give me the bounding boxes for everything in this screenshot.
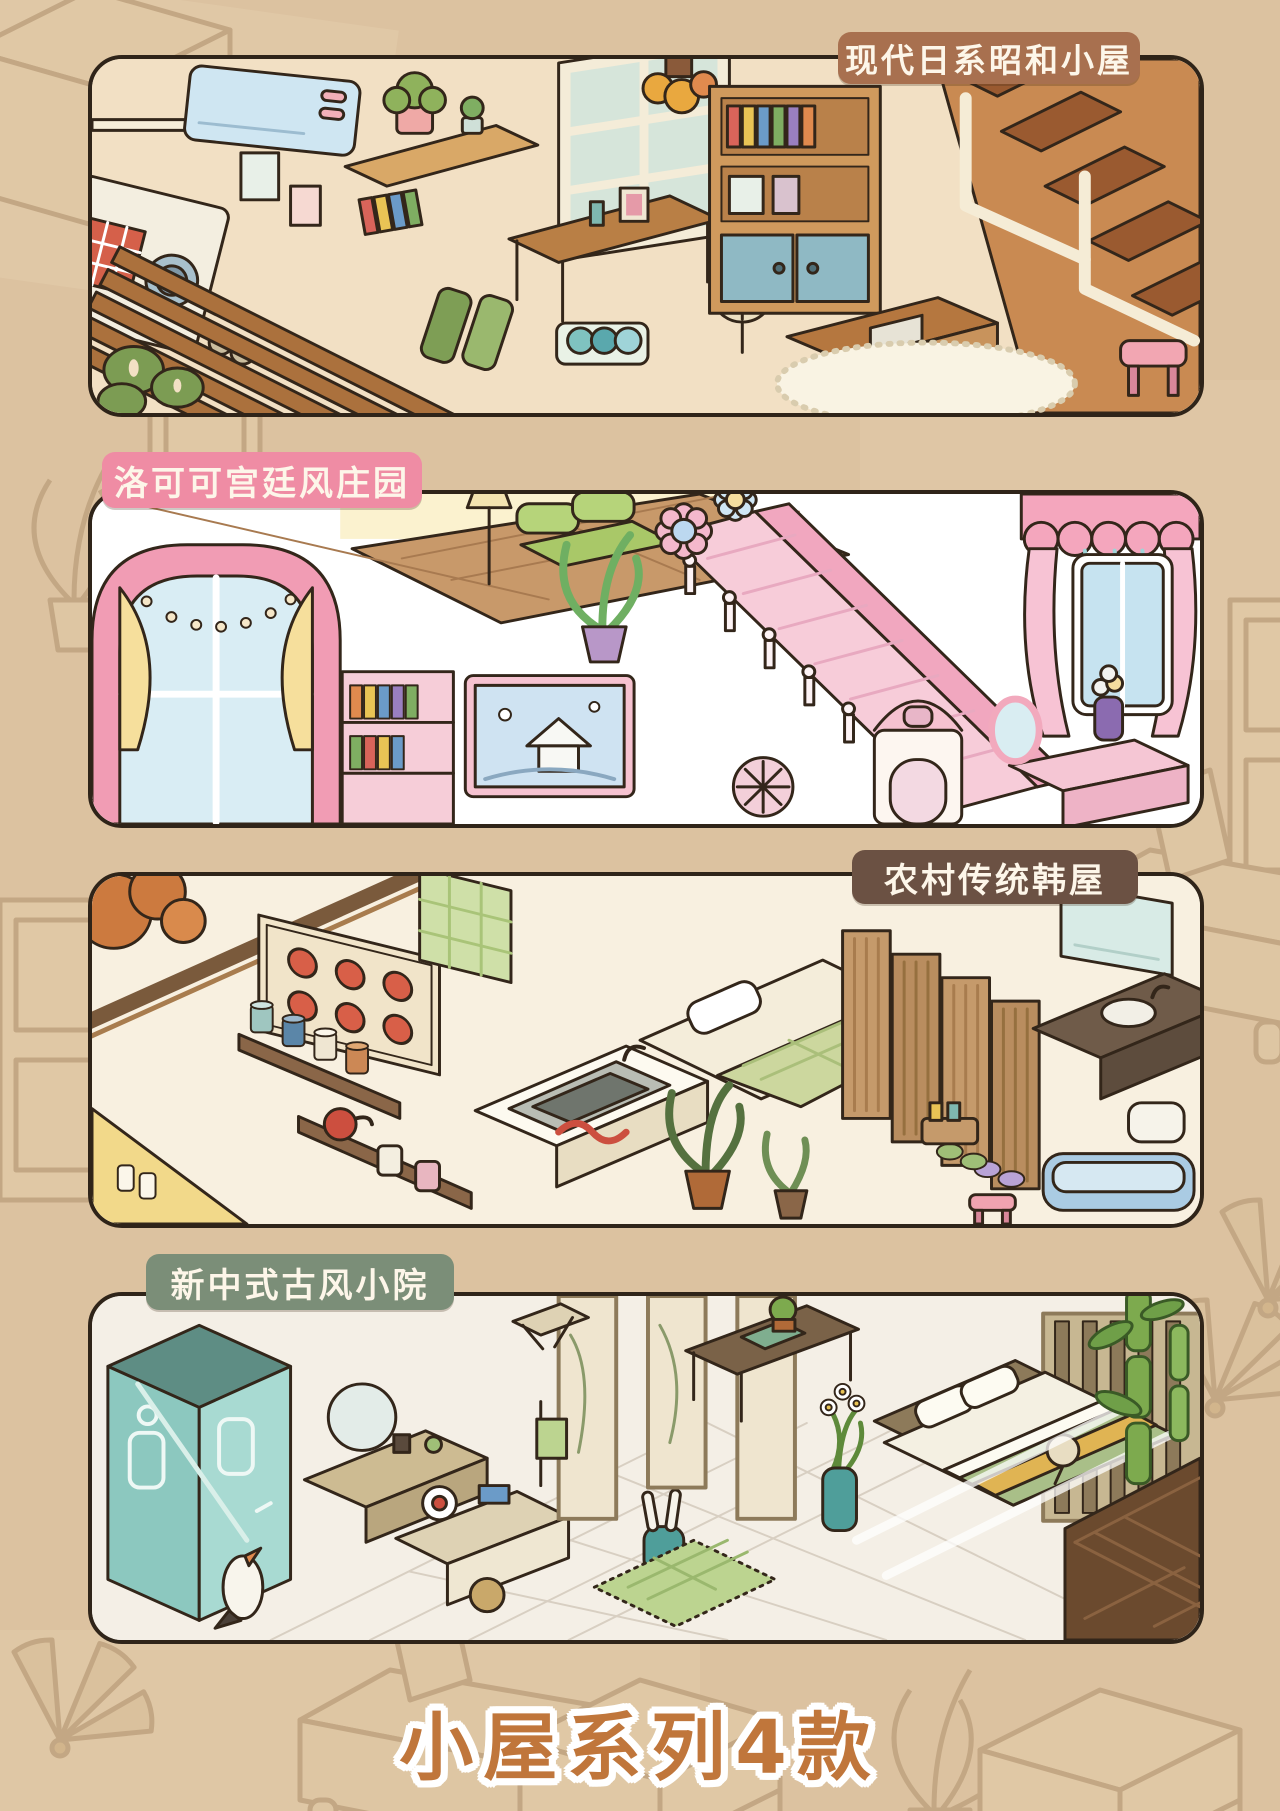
badge-rococo-palace-manor: 洛可可宫廷风庄园 <box>102 452 422 508</box>
hanok-illustration <box>92 876 1200 1224</box>
badge-label: 洛可可宫廷风庄园 <box>114 456 410 505</box>
badge-label: 现代日系昭和小屋 <box>845 34 1133 82</box>
badge-new-chinese-courtyard: 新中式古风小院 <box>146 1254 454 1310</box>
rococo-manor-illustration <box>92 494 1200 824</box>
badge-rural-traditional-hanok: 农村传统韩屋 <box>852 850 1138 904</box>
panel-rural-traditional-hanok <box>88 872 1204 1228</box>
poster-page: 现代日系昭和小屋 洛可可宫廷风庄园 农村传统韩屋 新中式古风小院 小屋系列4款 <box>0 0 1280 1811</box>
badge-label: 农村传统韩屋 <box>884 853 1106 902</box>
showa-house-illustration <box>92 59 1200 413</box>
series-title: 小屋系列4款 <box>0 1688 1280 1795</box>
chinese-courtyard-illustration <box>92 1296 1200 1640</box>
badge-modern-japanese-showa-house: 现代日系昭和小屋 <box>838 32 1140 84</box>
panel-rococo-palace-manor <box>88 490 1204 828</box>
panel-modern-japanese-showa-house <box>88 55 1204 417</box>
panel-new-chinese-courtyard <box>88 1292 1204 1644</box>
badge-label: 新中式古风小院 <box>171 1258 430 1307</box>
